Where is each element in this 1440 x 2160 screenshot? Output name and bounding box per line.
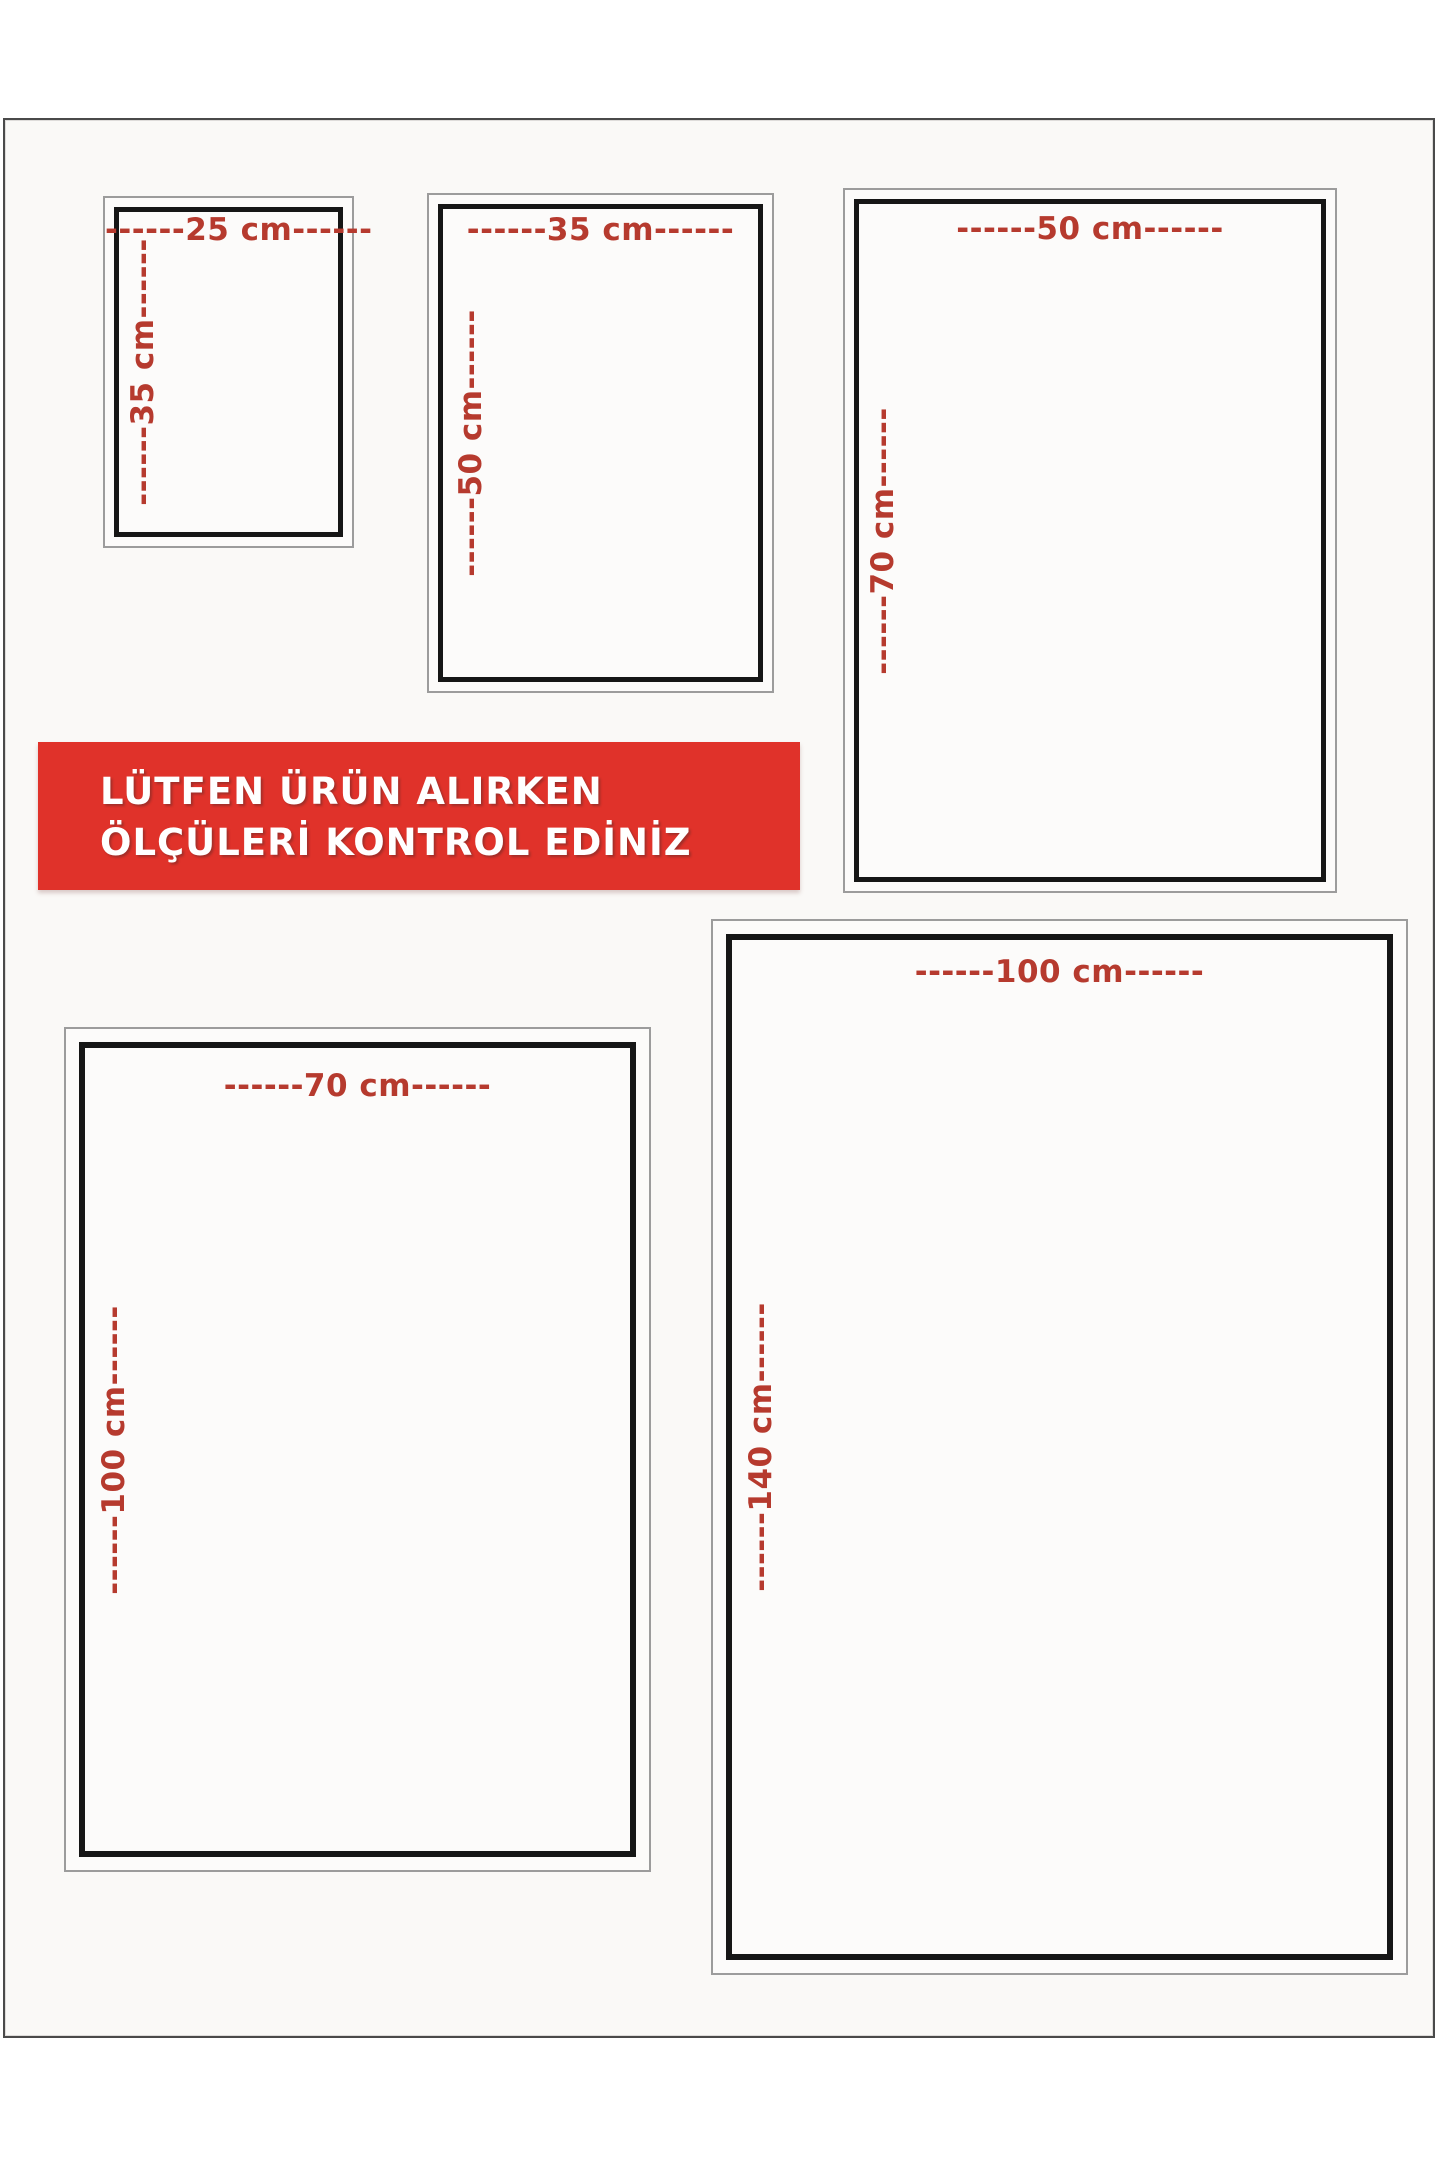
- size-box-50x70: ------50 cm------ ------70 cm------: [843, 188, 1337, 893]
- height-dimension-label: ------100 cm------: [95, 1305, 133, 1595]
- inner-border-frame: [726, 934, 1393, 1960]
- size-box-35x50: ------35 cm------ ------50 cm------: [427, 193, 774, 693]
- size-box-70x100: ------70 cm------ ------100 cm------: [64, 1027, 651, 1872]
- warning-banner: LÜTFEN ÜRÜN ALIRKEN ÖLÇÜLERİ KONTROL EDİ…: [38, 742, 800, 890]
- width-dimension-label: ------70 cm------: [66, 1067, 649, 1105]
- size-box-100x140: ------100 cm------ ------140 cm------: [711, 919, 1408, 1975]
- height-dimension-label: ------70 cm------: [864, 407, 902, 675]
- size-box-25x35: ------25 cm------ ------35 cm------: [103, 196, 354, 548]
- warning-banner-line2: ÖLÇÜLERİ KONTROL EDİNİZ: [100, 817, 800, 868]
- height-dimension-label: ------140 cm------: [742, 1302, 780, 1592]
- height-dimension-label: ------35 cm------: [124, 238, 162, 506]
- height-dimension-label: ------50 cm------: [452, 309, 490, 577]
- warning-banner-line1: LÜTFEN ÜRÜN ALIRKEN: [100, 766, 800, 817]
- width-dimension-label: ------100 cm------: [713, 953, 1406, 991]
- width-dimension-label: ------35 cm------: [429, 211, 772, 249]
- inner-border-frame: [854, 199, 1326, 882]
- size-guide-screenshot: { "banner": { "line1": "LÜTFEN ÜRÜN ALIR…: [0, 0, 1440, 2160]
- width-dimension-label: ------50 cm------: [845, 210, 1335, 248]
- inner-border-frame: [79, 1042, 636, 1857]
